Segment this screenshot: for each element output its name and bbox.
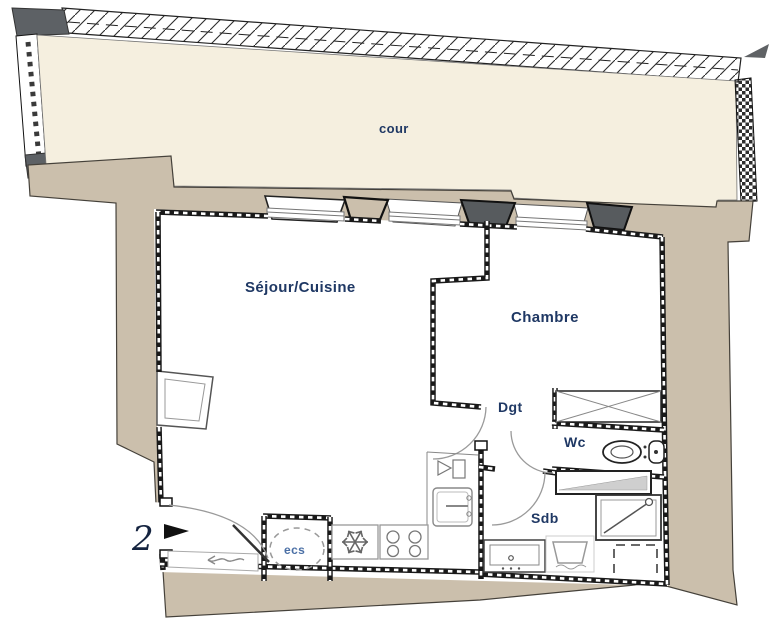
courtyard-label: cour bbox=[379, 121, 409, 136]
toilet-icon bbox=[603, 441, 664, 463]
water-heater-label: ecs bbox=[284, 543, 305, 557]
dark-corner-block-topleft bbox=[12, 8, 69, 36]
checker-wall-icon bbox=[735, 78, 757, 202]
toilet-label: Wc bbox=[564, 434, 586, 450]
fridge-box bbox=[332, 525, 378, 559]
washing-machine-icon bbox=[484, 540, 545, 572]
dark-triangle-marker bbox=[744, 44, 769, 58]
left-wall-niche-window bbox=[157, 371, 213, 429]
shower-icon bbox=[596, 495, 661, 540]
kitchen-sink-icon bbox=[433, 488, 472, 526]
floor-plan-svg: 2 bbox=[0, 0, 769, 640]
hall-door-jamb bbox=[475, 441, 487, 450]
entrance-storage bbox=[168, 551, 258, 571]
hallway-label: Dgt bbox=[498, 399, 523, 415]
stove-burners-icon bbox=[380, 525, 428, 559]
window-pier-dark-2 bbox=[587, 203, 632, 230]
bedroom-label: Chambre bbox=[511, 309, 579, 326]
bathroom-label: Sdb bbox=[531, 510, 559, 526]
duct-block bbox=[556, 471, 651, 494]
living-kitchen-label: Séjour/Cuisine bbox=[245, 279, 356, 296]
entrance-number: 2 bbox=[131, 519, 154, 559]
bedroom-closet bbox=[556, 391, 661, 422]
